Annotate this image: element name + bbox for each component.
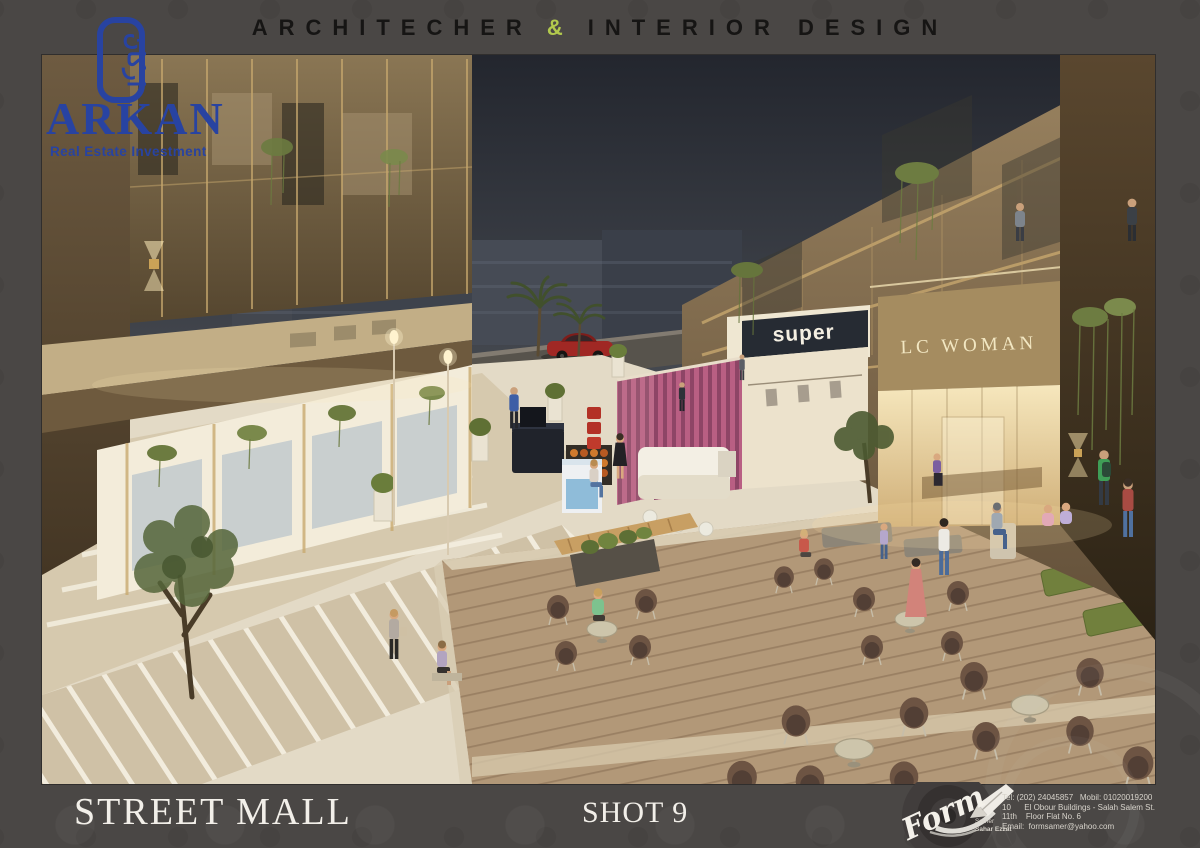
arkan-emblem: أركان	[96, 16, 146, 104]
contact-info: Tel: (202) 24045857 Mobil: 01020019200 1…	[1002, 793, 1197, 831]
shot-label: SHOT 9	[582, 796, 688, 830]
arkan-tagline: Real Estate Investment	[50, 144, 240, 159]
arcade-glow	[92, 367, 472, 403]
header-title-left: ARCHITECHER	[252, 15, 533, 40]
header-title-right: INTERIOR DESIGN	[588, 15, 949, 40]
lc-woman-store: LC WOMAN	[878, 281, 1060, 527]
presentation-board: ARCHITECHER&INTERIOR DESIGN	[0, 0, 1200, 848]
red-sign-stack	[587, 407, 601, 449]
header-ampersand: &	[547, 15, 574, 40]
arkan-logo: أركان ARKAN Real Estate Investment	[44, 4, 214, 169]
contact-address-line-1: 10 El Obour Buildings - Salah Salem St.	[1002, 803, 1197, 813]
contact-email-line: Email: formsamer@yahoo.com	[1002, 822, 1197, 832]
project-title: STREET MALL	[74, 790, 352, 834]
form-studio-block: Form Samer Sahar Ezzat Tel: (202) 240458…	[890, 782, 1200, 848]
super-sign-text: super	[772, 320, 835, 346]
contact-address-line-2: 11th Floor Flat No. 6	[1002, 812, 1197, 822]
arkan-arabic-text: أركان	[121, 33, 146, 88]
arkan-brand-name: ARKAN	[46, 96, 214, 142]
super-store: super	[727, 305, 870, 489]
contact-tel-line: Tel: (202) 24045857 Mobil: 01020019200	[1002, 793, 1197, 803]
